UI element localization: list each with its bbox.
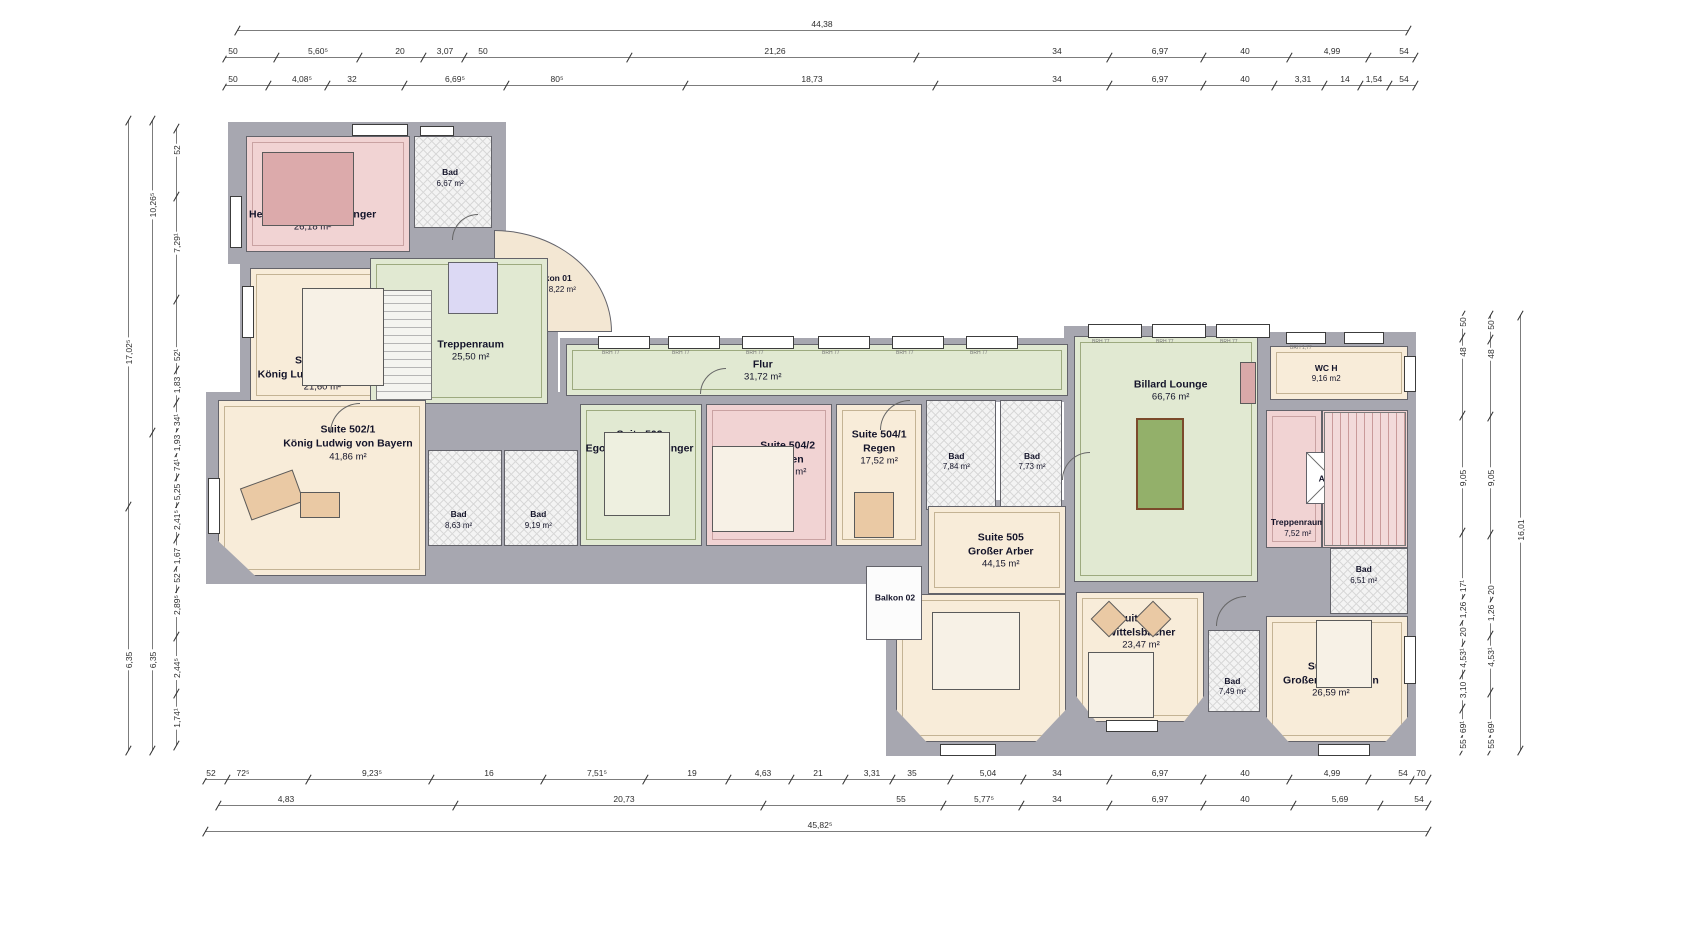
room-area: 7,73 m² xyxy=(1018,462,1045,473)
dimension-value: 34 xyxy=(1050,794,1063,804)
dimension-value: 9,05 xyxy=(1486,468,1496,489)
dimension-value: 14 xyxy=(1338,74,1351,84)
furniture-bett-502-2 xyxy=(302,288,384,386)
window xyxy=(742,336,794,349)
furniture-schrank-billard xyxy=(1240,362,1256,404)
room-label-treppenraum-links: Treppenraum25,50 m² xyxy=(437,337,504,364)
room-area: 6,67 m² xyxy=(437,179,464,190)
room-bad-7-84: Bad7,84 m² xyxy=(926,400,996,510)
dimension-value: 1,26 xyxy=(1458,600,1468,621)
room-name: Balkon 02 xyxy=(875,592,915,603)
window xyxy=(242,286,254,338)
window-mark-label: BRH 77 xyxy=(1092,339,1110,345)
window-mark-label: BRH 77 xyxy=(1220,339,1238,345)
dimension-value: 34¹ xyxy=(172,412,182,428)
dimension-value: 4,63 xyxy=(753,768,774,778)
dimension-value: 48 xyxy=(1486,347,1496,360)
room-name: Billard Lounge xyxy=(1134,378,1208,392)
dimension-value: 6,69⁵ xyxy=(443,74,467,84)
room-area: 25,50 m² xyxy=(437,352,504,365)
window xyxy=(1318,744,1370,756)
room-label-bad-8-63: Bad8,63 m² xyxy=(445,509,472,531)
room-balkon-02: Balkon 02 xyxy=(866,566,922,640)
floor-plan: Balkon 01NGF: 8,22 m²Suite 501Henriette … xyxy=(0,0,1682,946)
window xyxy=(1106,720,1158,732)
dimension-line xyxy=(237,30,1408,31)
window xyxy=(598,336,650,349)
room-label-suite-504-1: Suite 504/1Regen17,52 m² xyxy=(852,427,907,468)
dimension-value: 1,26 xyxy=(1486,603,1496,624)
room-area: 26,59 m² xyxy=(1283,688,1379,701)
window xyxy=(208,478,220,534)
dimension-value: 20 xyxy=(1486,583,1496,596)
dimension-value: 55 xyxy=(1486,737,1496,750)
dimension-value: 40 xyxy=(1238,768,1251,778)
window xyxy=(892,336,944,349)
dimension-value: 54 xyxy=(1397,46,1410,56)
dimension-value: 54 xyxy=(1412,794,1425,804)
dimension-value: 1,67 xyxy=(172,546,182,567)
room-label-bad-7-73: Bad7,73 m² xyxy=(1018,450,1045,472)
window-mark-label: BRH 1,77 xyxy=(1290,345,1312,351)
window xyxy=(352,124,408,136)
room-area: 7,84 m² xyxy=(943,462,970,473)
dimension-value: 2,89⁵ xyxy=(172,593,182,617)
dimension-value: 19 xyxy=(685,768,698,778)
room-flur: Flur31,72 m² xyxy=(566,344,1068,396)
dimension-value: 6,97 xyxy=(1150,768,1171,778)
window-mark-label: BRH 77 xyxy=(746,350,764,356)
dimension-value: 6,97 xyxy=(1150,74,1171,84)
room-label-suite-505: Suite 505Großer Arber44,15 m² xyxy=(968,530,1034,571)
dimension-value: 52 xyxy=(172,571,182,584)
room-area: 9,16 m2 xyxy=(1312,374,1341,385)
room-bad-7-73: Bad7,73 m² xyxy=(1000,400,1062,510)
dimension-value: 20,73 xyxy=(611,794,636,804)
room-name: Großer Arber xyxy=(968,545,1034,559)
dimension-value: 17,02⁵ xyxy=(124,338,134,367)
room-label-bad-501: Bad6,67 m² xyxy=(437,167,464,189)
dimension-value: 34 xyxy=(1050,46,1063,56)
window xyxy=(420,126,454,136)
stair-flight xyxy=(376,290,432,400)
dimension-value: 21,26 xyxy=(762,46,787,56)
dimension-value: 69¹ xyxy=(1486,719,1496,735)
dimension-value: 6,97 xyxy=(1150,46,1171,56)
window-mark-label: BRH 77 xyxy=(602,350,620,356)
dimension-value: 80⁵ xyxy=(549,74,566,84)
dimension-value: 50 xyxy=(226,74,239,84)
dimension-value: 3,07 xyxy=(435,46,456,56)
window xyxy=(1404,356,1416,392)
dimension-value: 16,01 xyxy=(1516,517,1526,542)
room-bad-9-19: Bad9,19 m² xyxy=(504,450,578,546)
furniture-tisch-504-1 xyxy=(854,492,894,538)
room-name: Suite 505 xyxy=(968,530,1034,544)
room-bad-501: Bad6,67 m² xyxy=(414,136,492,228)
room-area: 31,72 m² xyxy=(744,372,782,385)
room-name: Regen xyxy=(852,441,907,455)
dimension-value: 34 xyxy=(1050,74,1063,84)
dimension-value: 6,97 xyxy=(1150,794,1171,804)
window xyxy=(1286,332,1326,344)
stair-flight xyxy=(1324,412,1406,546)
room-name: Bad xyxy=(1018,450,1045,461)
dimension-value: 5,25 xyxy=(172,482,182,503)
window xyxy=(1216,324,1270,338)
window xyxy=(1404,636,1416,684)
window xyxy=(818,336,870,349)
room-name: Bad xyxy=(1350,564,1377,575)
room-label-wc-h: WC H9,16 m2 xyxy=(1312,363,1341,385)
dimension-value: 5,69 xyxy=(1330,794,1351,804)
dimension-value: 7,51⁵ xyxy=(585,768,609,778)
dimension-value: 54 xyxy=(1397,74,1410,84)
room-area: 7,52 m² xyxy=(1271,529,1325,540)
dimension-value: 69¹ xyxy=(1458,719,1468,735)
room-label-balkon-02: Balkon 02 xyxy=(875,592,915,603)
room-label-bad-6-51: Bad6,51 m² xyxy=(1350,564,1377,586)
dimension-value: 52 xyxy=(204,768,217,778)
dimension-value: 5,60⁵ xyxy=(306,46,330,56)
room-name: Treppenraum xyxy=(1271,517,1325,528)
dimension-value: 1,54 xyxy=(1364,74,1385,84)
room-bad-8-63: Bad8,63 m² xyxy=(428,450,502,546)
dimension-value: 50 xyxy=(476,46,489,56)
window xyxy=(966,336,1018,349)
room-bad-6-51: Bad6,51 m² xyxy=(1330,548,1408,614)
dimension-value: 4,99 xyxy=(1322,768,1343,778)
dimension-value: 17¹ xyxy=(1458,578,1468,594)
room-name: Bad xyxy=(943,450,970,461)
dimension-value: 10,26⁵ xyxy=(148,191,158,220)
dimension-value: 40 xyxy=(1238,46,1251,56)
dimension-value: 3,31 xyxy=(862,768,883,778)
dimension-value: 4,53¹ xyxy=(1458,646,1468,669)
dimension-value: 40 xyxy=(1238,74,1251,84)
window-mark-label: BRH 77 xyxy=(672,350,690,356)
dimension-value: 40 xyxy=(1238,794,1251,804)
window-mark-label: BRH 77 xyxy=(822,350,840,356)
dimension-value: 1,93 xyxy=(172,433,182,454)
room-area: 44,15 m² xyxy=(968,559,1034,572)
room-name: König Ludwig von Bayern xyxy=(283,437,413,451)
room-name: Bad xyxy=(437,167,464,178)
dimension-value: 6,35 xyxy=(148,650,158,671)
room-area: 17,52 m² xyxy=(852,455,907,468)
furniture-sofa-502-1b xyxy=(300,492,340,518)
dimension-value: 52¹ xyxy=(172,347,182,363)
room-area: 41,86 m² xyxy=(283,451,413,464)
dimension-value: 50 xyxy=(1486,318,1496,331)
window xyxy=(230,196,242,248)
room-wc-h: WC H9,16 m2 xyxy=(1270,346,1408,400)
room-label-bad-9-19: Bad9,19 m² xyxy=(525,509,552,531)
dimension-value: 4,53¹ xyxy=(1486,645,1496,668)
dimension-value: 3,31 xyxy=(1293,74,1314,84)
window xyxy=(1344,332,1384,344)
furniture-bett-505 xyxy=(932,612,1020,690)
room-name: WC H xyxy=(1312,363,1341,374)
room-area: 9,19 m² xyxy=(525,520,552,531)
room-lavender-cell xyxy=(448,262,498,314)
dimension-line xyxy=(205,779,1428,780)
room-name: Bad xyxy=(1219,676,1246,687)
dimension-value: 35 xyxy=(905,768,918,778)
window xyxy=(940,744,996,756)
room-area: 23,47 m² xyxy=(1107,640,1176,653)
room-bad-7-49: Bad7,49 m² xyxy=(1208,630,1260,712)
room-label-bad-7-49: Bad7,49 m² xyxy=(1219,676,1246,698)
furniture-bett-504-2 xyxy=(712,446,794,532)
window xyxy=(668,336,720,349)
window xyxy=(1152,324,1206,338)
furniture-bett-506 xyxy=(1088,652,1154,718)
dimension-value: 5,04 xyxy=(978,768,999,778)
room-area: 7,49 m² xyxy=(1219,687,1246,698)
dimension-value: 55 xyxy=(894,794,907,804)
furniture-bett-501 xyxy=(262,152,354,226)
dimension-value: 5,77⁵ xyxy=(972,794,996,804)
dimension-value: 6,35 xyxy=(124,650,134,671)
dimension-value: 70 xyxy=(1414,768,1427,778)
room-suite-505: Suite 505Großer Arber44,15 m² xyxy=(928,506,1066,594)
dimension-value: 72⁵ xyxy=(235,768,252,778)
dimension-value: 7,29¹ xyxy=(172,231,182,254)
room-name: Bad xyxy=(445,509,472,520)
dimension-value: 4,83 xyxy=(276,794,297,804)
dimension-value: 32 xyxy=(345,74,358,84)
dimension-value: 16 xyxy=(482,768,495,778)
dimension-value: 20 xyxy=(1458,625,1468,638)
window-mark-label: BRH 77 xyxy=(1156,339,1174,345)
room-area: 6,51 m² xyxy=(1350,576,1377,587)
room-label-treppenraum-rechts: Treppenraum7,52 m² xyxy=(1271,517,1325,539)
furniture-bett-503 xyxy=(604,432,670,516)
dimension-value: 1,74¹ xyxy=(172,706,182,729)
room-label-bad-7-84: Bad7,84 m² xyxy=(943,450,970,472)
dimension-value: 44,38 xyxy=(809,19,834,29)
dimension-value: 55 xyxy=(1458,737,1468,750)
dimension-value: 74¹ xyxy=(172,457,182,473)
dimension-value: 48 xyxy=(1458,345,1468,358)
window xyxy=(1088,324,1142,338)
dimension-value: 9,05 xyxy=(1458,468,1468,489)
dimension-value: 4,08⁵ xyxy=(290,74,314,84)
dimension-value: 18,73 xyxy=(799,74,824,84)
room-label-billard-lounge: Billard Lounge66,76 m² xyxy=(1134,378,1208,405)
dimension-value: 3,10 xyxy=(1458,680,1468,701)
dimension-line xyxy=(225,57,1415,58)
room-name: Bad xyxy=(525,509,552,520)
dimension-value: 45,82⁵ xyxy=(806,820,835,830)
dimension-value: 20 xyxy=(393,46,406,56)
room-name: Treppenraum xyxy=(437,337,504,351)
dimension-value: 9,23⁵ xyxy=(360,768,384,778)
room-name: Flur xyxy=(744,358,782,372)
window-mark-label: BRH 77 xyxy=(970,350,988,356)
dimension-line xyxy=(218,805,1428,806)
room-area: 66,76 m² xyxy=(1134,392,1208,405)
room-area: 8,63 m² xyxy=(445,520,472,531)
dimension-value: 2,41⁵ xyxy=(172,508,182,532)
furniture-billardtisch xyxy=(1136,418,1184,510)
dimension-value: 54 xyxy=(1396,768,1409,778)
dimension-value: 52 xyxy=(172,143,182,156)
furniture-bett-507 xyxy=(1316,620,1372,688)
dimension-value: 34 xyxy=(1050,768,1063,778)
dimension-value: 21 xyxy=(811,768,824,778)
dimension-value: 2,44⁵ xyxy=(172,656,182,680)
dimension-value: 1,83 xyxy=(172,375,182,396)
window-mark-label: BRH 77 xyxy=(896,350,914,356)
room-label-flur: Flur31,72 m² xyxy=(744,358,782,385)
dimension-value: 50 xyxy=(226,46,239,56)
dimension-value: 50 xyxy=(1458,315,1468,328)
dimension-value: 4,99 xyxy=(1322,46,1343,56)
dimension-line xyxy=(205,831,1428,832)
